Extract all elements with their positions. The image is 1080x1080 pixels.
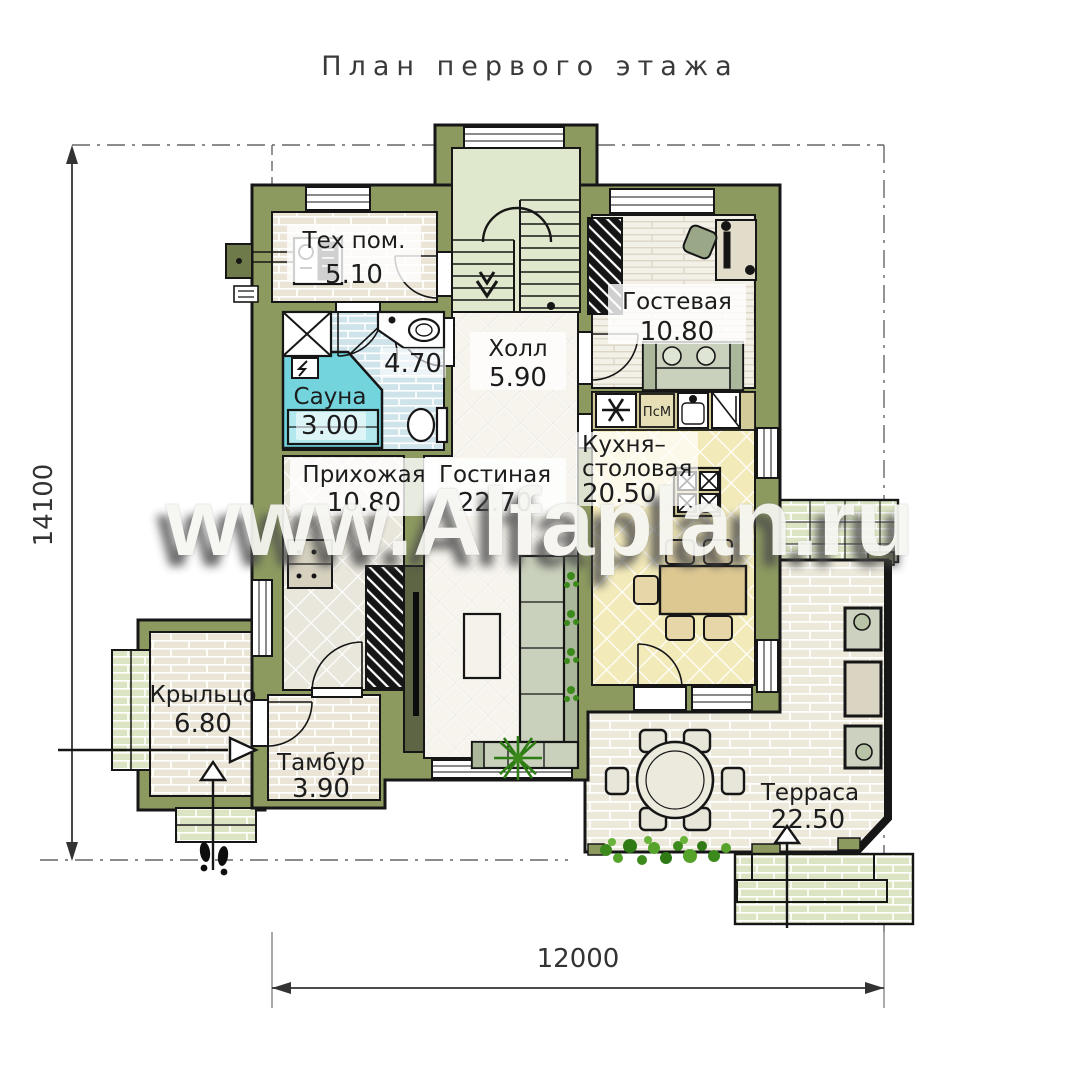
kitchen-counter xyxy=(592,392,755,430)
label-sauna-name: Сауна xyxy=(294,384,367,410)
label-terrace-area: 22.50 xyxy=(771,805,845,835)
label-porch-area: 6.80 xyxy=(174,709,232,739)
sauna-stove xyxy=(292,358,318,378)
entry-wardrobe xyxy=(366,566,404,688)
dishwasher-label: ПсМ xyxy=(643,405,671,420)
label-bath-area: 4.70 xyxy=(384,349,442,379)
window-stair-tower xyxy=(464,127,564,148)
side-table xyxy=(845,662,881,716)
label-guest-name: Гостевая xyxy=(622,289,732,315)
shoe-cabinet xyxy=(288,540,332,588)
label-vestibule-area: 3.90 xyxy=(292,774,350,804)
window-guest xyxy=(610,189,714,213)
label-hall-area: 5.90 xyxy=(489,363,547,393)
kitchen-table xyxy=(660,566,746,614)
label-hall-name: Холл xyxy=(488,336,547,362)
coffee-table xyxy=(464,614,500,678)
label-tech-name: Тех пом. xyxy=(302,228,406,254)
dimension-left: 14100 xyxy=(29,145,78,861)
living-plant xyxy=(494,736,542,780)
floor-plan-page: 14100 12000 xyxy=(0,0,1080,1080)
label-terrace-name: Терраса xyxy=(760,780,859,806)
dimension-bottom: 12000 xyxy=(272,944,884,994)
vent-shaft xyxy=(283,312,331,356)
label-entry-name: Прихожая xyxy=(302,462,425,488)
guest-sofa xyxy=(643,342,743,390)
toilet xyxy=(408,408,447,442)
label-kitchen-name-1: Кухня– xyxy=(582,432,666,458)
label-sauna-area: 3.00 xyxy=(301,411,359,441)
label-living-area: 22.70 xyxy=(458,488,532,518)
dimension-width-label: 12000 xyxy=(537,944,620,974)
dimension-height-label: 14100 xyxy=(29,464,59,547)
label-living-name: Гостиная xyxy=(439,462,551,488)
page-title: План первого этажа xyxy=(321,51,738,82)
window-kitchen-east-2 xyxy=(757,640,778,692)
label-entry-area: 10.80 xyxy=(327,488,401,518)
window-kitchen-east-1 xyxy=(757,428,778,478)
tv-wall xyxy=(404,566,424,752)
label-kitchen-area: 20.50 xyxy=(582,479,656,509)
terrace-table xyxy=(637,742,713,818)
label-guest-area: 10.80 xyxy=(640,317,714,347)
label-porch-name: Крыльцо xyxy=(149,682,256,708)
window-tech xyxy=(306,187,370,210)
window-kitchen-south xyxy=(692,687,752,710)
window-entry-west xyxy=(252,580,272,656)
floor-plan-canvas: 14100 12000 xyxy=(0,0,1080,1080)
terrace-lounge-furniture xyxy=(845,608,881,768)
label-tech-area: 5.10 xyxy=(325,260,383,290)
label-vestibule-name: Тамбур xyxy=(276,750,365,776)
